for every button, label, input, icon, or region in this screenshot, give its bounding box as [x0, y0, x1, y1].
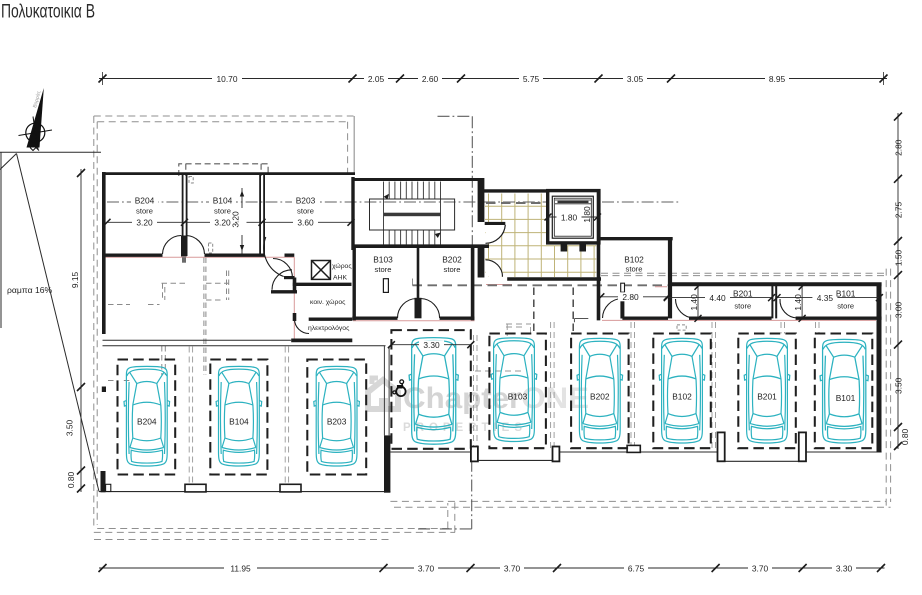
- svg-text:3.50: 3.50: [65, 420, 75, 437]
- svg-text:3.50: 3.50: [894, 377, 904, 394]
- svg-text:κοιν. χώρος: κοιν. χώρος: [310, 298, 346, 306]
- svg-text:B202: B202: [442, 255, 462, 265]
- svg-text:ραμπα 16%: ραμπα 16%: [7, 285, 53, 295]
- svg-text:B102: B102: [672, 392, 692, 402]
- svg-text:3.00: 3.00: [894, 302, 904, 319]
- svg-text:B103: B103: [508, 392, 528, 402]
- svg-text:Πολυκατοικια Β: Πολυκατοικια Β: [1, 2, 95, 23]
- svg-text:3.20: 3.20: [214, 218, 231, 228]
- svg-text:3.20: 3.20: [231, 211, 241, 228]
- svg-text:B204: B204: [135, 195, 155, 205]
- svg-text:store: store: [444, 265, 461, 274]
- svg-text:0.80: 0.80: [66, 472, 76, 489]
- svg-text:B104: B104: [229, 417, 249, 427]
- svg-text:5.75: 5.75: [523, 74, 540, 84]
- svg-text:χώρος: χώρος: [332, 262, 352, 270]
- svg-text:2.60: 2.60: [422, 74, 439, 84]
- svg-text:4.35: 4.35: [817, 293, 834, 303]
- svg-text:2.80: 2.80: [622, 292, 639, 302]
- svg-text:B104: B104: [213, 195, 233, 205]
- svg-text:3.20: 3.20: [136, 218, 153, 228]
- svg-text:8.95: 8.95: [769, 74, 786, 84]
- svg-text:B101: B101: [836, 393, 856, 403]
- svg-text:store: store: [136, 207, 153, 216]
- svg-text:2.75: 2.75: [894, 202, 904, 219]
- svg-text:3.70: 3.70: [504, 564, 521, 574]
- svg-text:0.80: 0.80: [900, 429, 910, 446]
- svg-text:1.40: 1.40: [689, 294, 699, 311]
- svg-text:B204: B204: [137, 417, 157, 427]
- svg-text:6.75: 6.75: [628, 564, 645, 574]
- svg-text:3.70: 3.70: [752, 564, 769, 574]
- svg-text:store: store: [375, 265, 392, 274]
- svg-text:B203: B203: [296, 195, 316, 205]
- svg-text:B102: B102: [624, 255, 644, 265]
- svg-text:9.15: 9.15: [70, 272, 80, 289]
- svg-text:store: store: [297, 207, 314, 216]
- svg-text:2.05: 2.05: [368, 74, 385, 84]
- svg-text:B202: B202: [590, 392, 610, 402]
- svg-text:B203: B203: [327, 417, 347, 427]
- svg-text:store: store: [734, 301, 751, 310]
- svg-text:10.70: 10.70: [217, 74, 238, 84]
- svg-text:4.40: 4.40: [709, 293, 726, 303]
- svg-text:B201: B201: [733, 289, 753, 299]
- svg-text:3.70: 3.70: [418, 564, 435, 574]
- svg-text:3.60: 3.60: [297, 218, 314, 228]
- svg-text:1.50: 1.50: [894, 250, 904, 267]
- svg-text:ηλεκτρολόγος: ηλεκτρολόγος: [308, 324, 350, 332]
- svg-text:3.30: 3.30: [836, 564, 853, 574]
- svg-text:B201: B201: [757, 392, 777, 402]
- svg-text:1.80: 1.80: [561, 212, 578, 222]
- svg-text:1.40: 1.40: [793, 294, 803, 311]
- svg-text:B101: B101: [836, 289, 856, 299]
- svg-text:ΑΗΚ: ΑΗΚ: [333, 275, 347, 282]
- svg-text:3.05: 3.05: [627, 74, 644, 84]
- svg-text:1.80: 1.80: [582, 206, 592, 223]
- svg-text:B103: B103: [373, 255, 393, 265]
- svg-text:store: store: [214, 207, 231, 216]
- svg-text:store: store: [626, 265, 643, 274]
- svg-text:11.95: 11.95: [230, 564, 251, 574]
- svg-text:store: store: [837, 301, 854, 310]
- svg-text:2.80: 2.80: [894, 139, 904, 156]
- svg-text:3.30: 3.30: [423, 340, 440, 350]
